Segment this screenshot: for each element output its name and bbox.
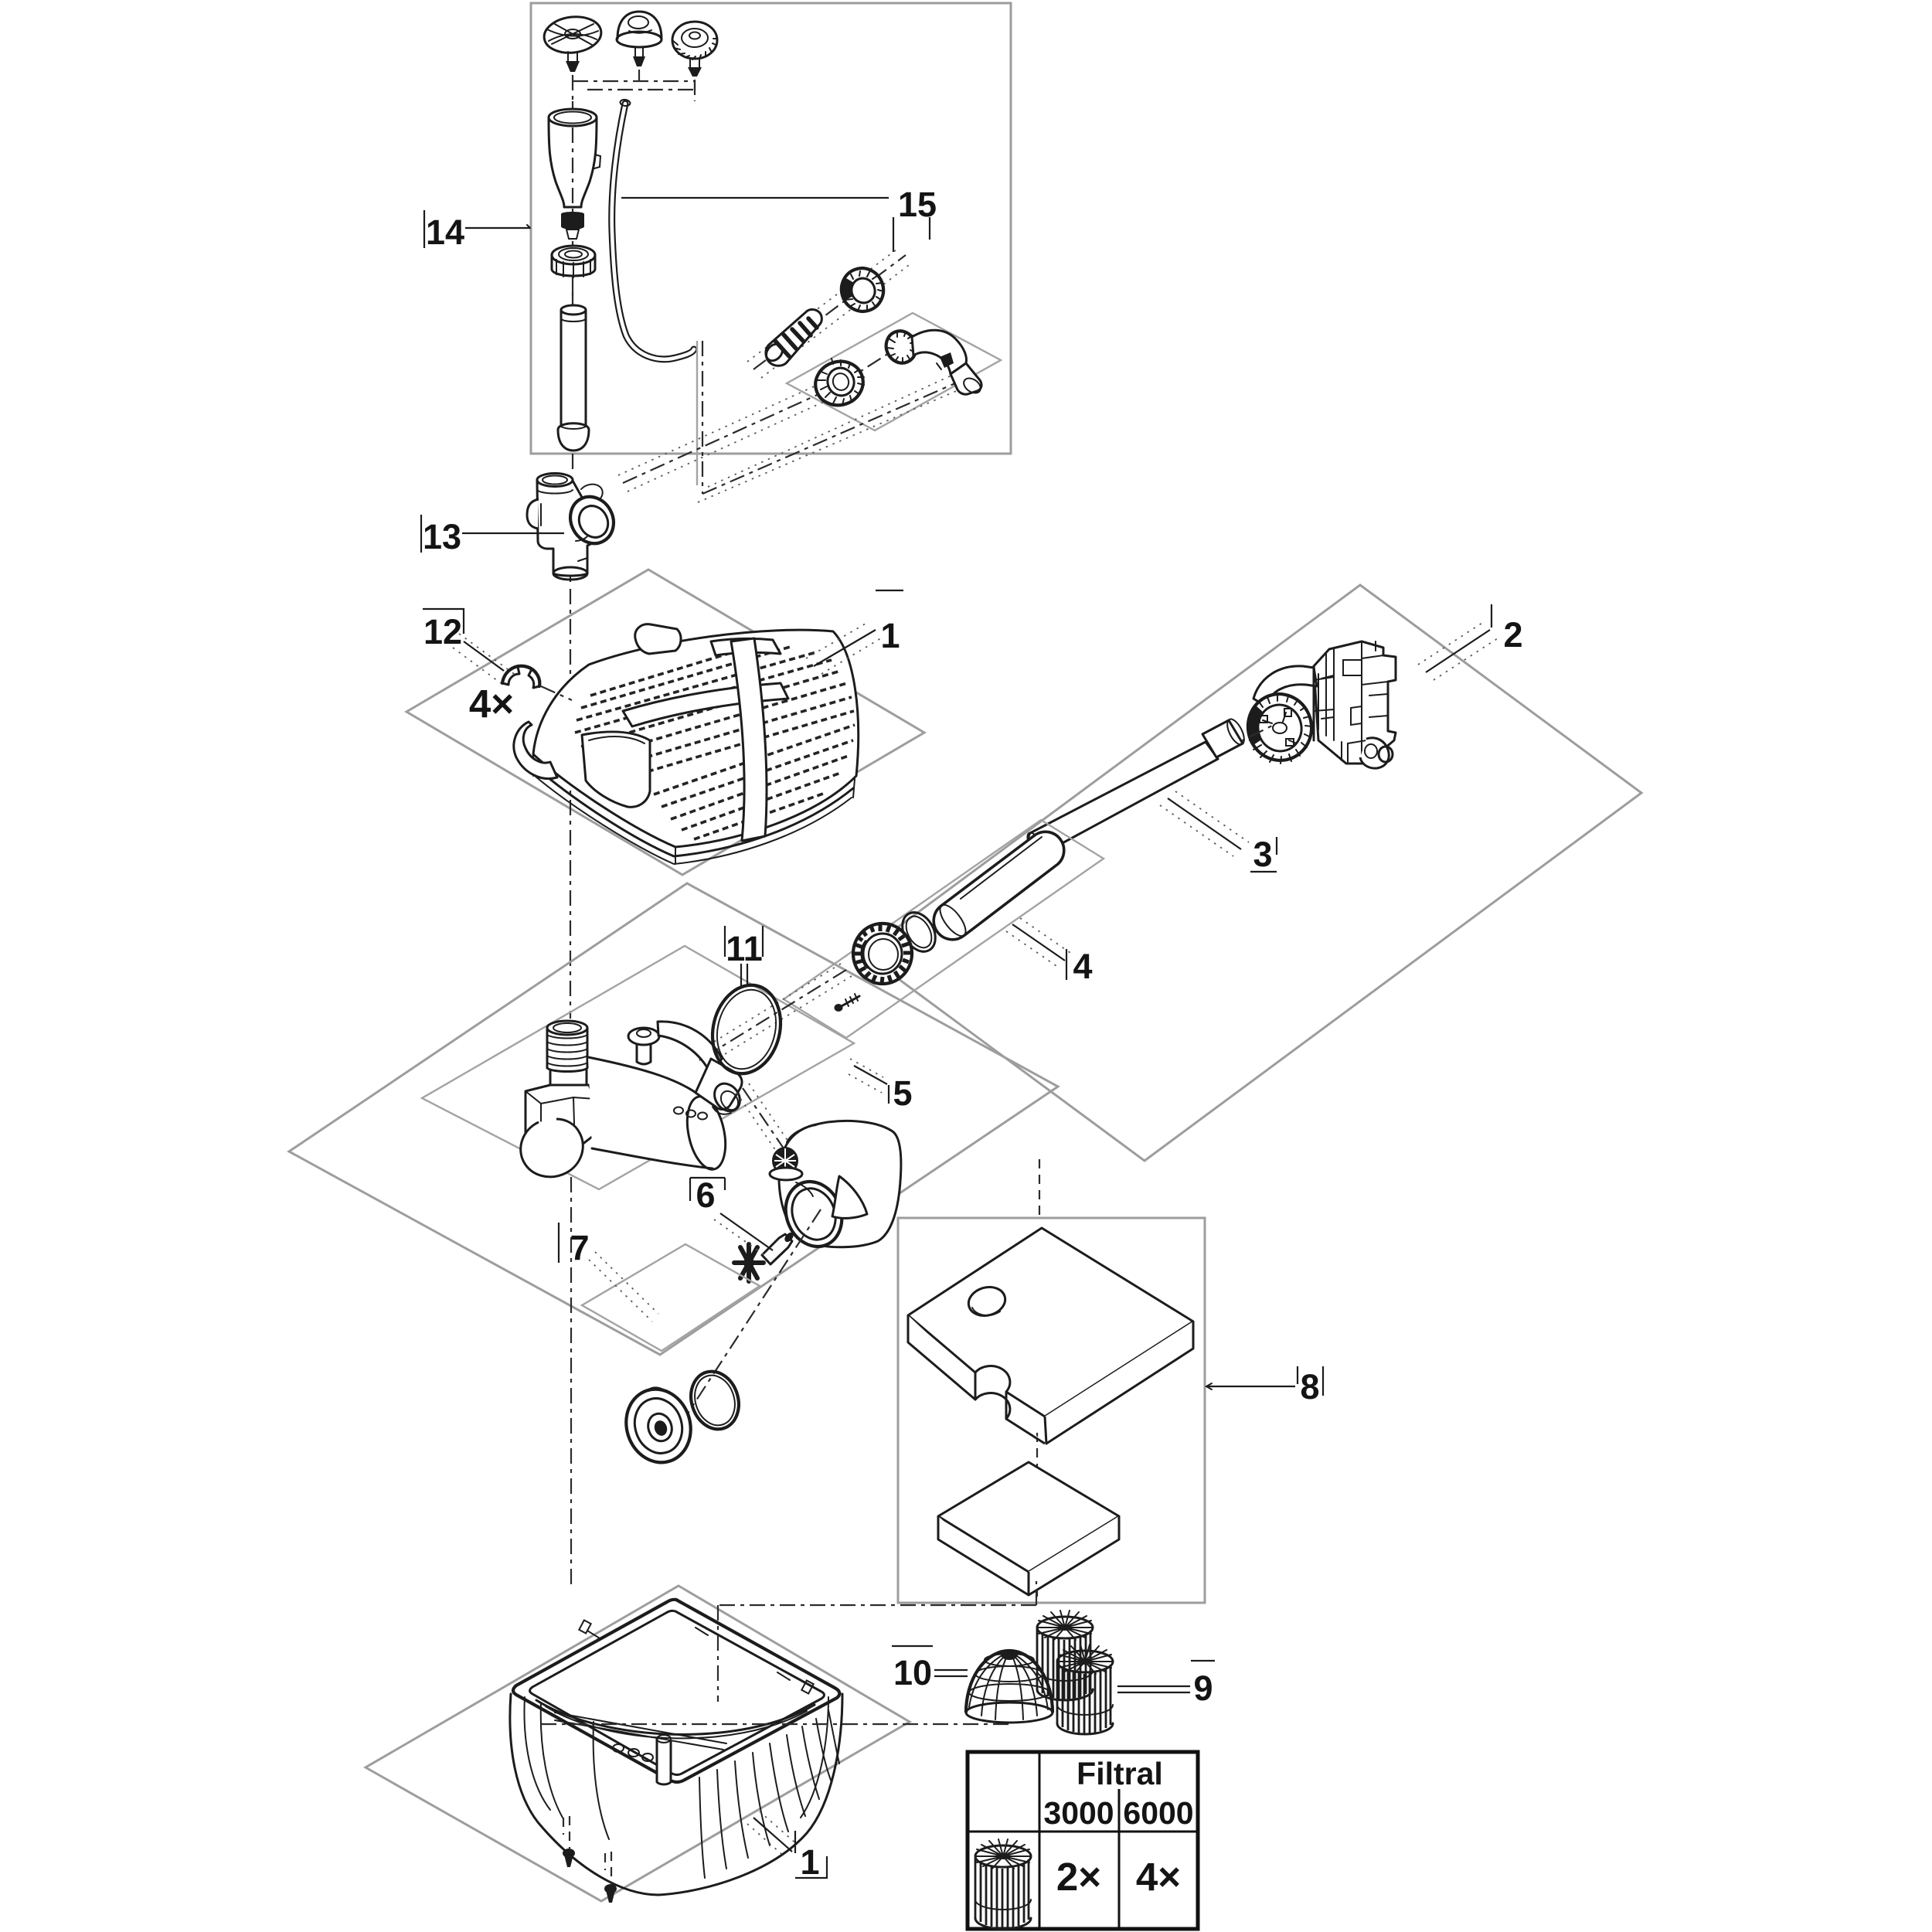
svg-text:1: 1 — [800, 1842, 819, 1882]
svg-text:5: 5 — [893, 1073, 912, 1113]
svg-text:7: 7 — [570, 1228, 589, 1267]
svg-text:6000: 6000 — [1123, 1795, 1193, 1831]
svg-text:4×: 4× — [469, 682, 514, 726]
svg-text:4: 4 — [1073, 947, 1092, 986]
svg-text:2: 2 — [1503, 615, 1522, 655]
svg-text:6: 6 — [696, 1175, 715, 1215]
svg-text:4×: 4× — [1136, 1855, 1181, 1899]
svg-text:10: 10 — [893, 1653, 932, 1692]
svg-text:13: 13 — [423, 517, 461, 556]
svg-text:1: 1 — [880, 616, 900, 655]
svg-text:12: 12 — [423, 612, 462, 651]
svg-text:14: 14 — [426, 213, 464, 252]
svg-text:Filtral: Filtral — [1077, 1756, 1163, 1791]
svg-text:8: 8 — [1300, 1367, 1319, 1406]
svg-text:9: 9 — [1193, 1668, 1213, 1708]
svg-text:2×: 2× — [1056, 1855, 1101, 1899]
svg-text:15: 15 — [898, 185, 937, 224]
svg-text:3000: 3000 — [1043, 1795, 1114, 1831]
svg-text:11: 11 — [726, 929, 763, 968]
svg-text:3: 3 — [1253, 835, 1272, 874]
